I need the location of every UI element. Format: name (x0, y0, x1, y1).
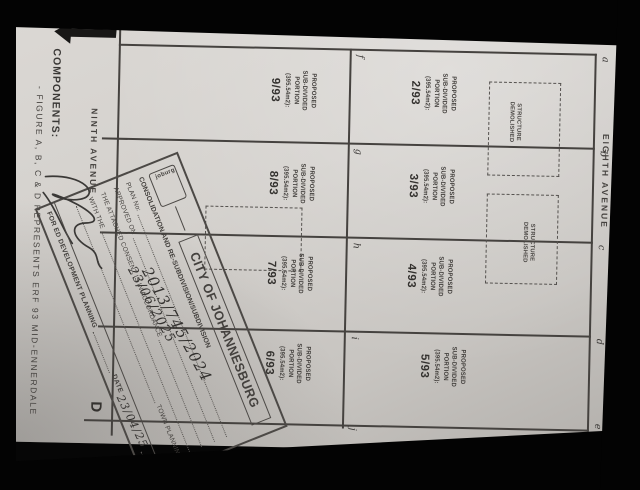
grid-letter-j: j (346, 428, 358, 440)
grid-letter-d: d (593, 339, 605, 351)
photo-black-border-left (0, 0, 16, 490)
plot-label-8-93: PROPOSED SUB-DIVIDED PORTION (395.54m2):… (255, 148, 326, 219)
grid-letter-h: h (350, 243, 362, 255)
scanned-plan-photo: a b c d e f g h i j EIGHTH AVENUE NINTH … (0, 0, 640, 490)
structure-note-2: STRUCTURE DEMOLISHED (499, 214, 556, 271)
components-body: - FIGURE A, B, C & D REPRESENTS ERF 93 M… (27, 86, 46, 416)
figure-label-d: D (87, 401, 104, 412)
stamp-content: joburg CITY OF JOHANNESBURG CONSOLIDATIO… (40, 157, 283, 479)
plot-label-4-93: PROPOSED SUB-DIVIDED PORTION (395.54m2):… (393, 241, 464, 312)
plot-label-9-93: PROPOSED SUB-DIVIDED PORTION (395.54m2):… (257, 55, 328, 126)
grid-letter-c: c (595, 245, 607, 257)
grid-letter-g: g (352, 149, 364, 161)
grid-letter-i: i (348, 337, 360, 349)
stamp-date-label: DATE (110, 374, 124, 394)
paper-sheet: a b c d e f g h i j EIGHTH AVENUE NINTH … (6, 12, 637, 455)
components-heading: COMPONENTS: (49, 48, 63, 138)
structure-note-1: STRUCTURE DEMOLISHED (486, 93, 543, 150)
joburg-logo-icon: joburg (148, 164, 187, 208)
grid-letter-a: a (599, 57, 611, 69)
plot-label-7-93: PROPOSED SUB-DIVIDED PORTION (395.54m2):… (253, 238, 324, 309)
grid-letter-f: f (353, 55, 365, 67)
plot-label-2-93: PROPOSED SUB-DIVIDED PORTION (395.54m2):… (397, 58, 468, 129)
street-label-eighth-avenue: EIGHTH AVENUE (598, 134, 612, 229)
stamp-rule (175, 206, 186, 231)
plot-label-3-93: PROPOSED SUB-DIVIDED PORTION (395.54m2):… (395, 151, 466, 222)
plot-label-5-93: PROPOSED SUB-DIVIDED PORTION (395.54m2):… (407, 331, 478, 402)
approval-stamp: joburg CITY OF JOHANNESBURG CONSOLIDATIO… (35, 152, 288, 484)
